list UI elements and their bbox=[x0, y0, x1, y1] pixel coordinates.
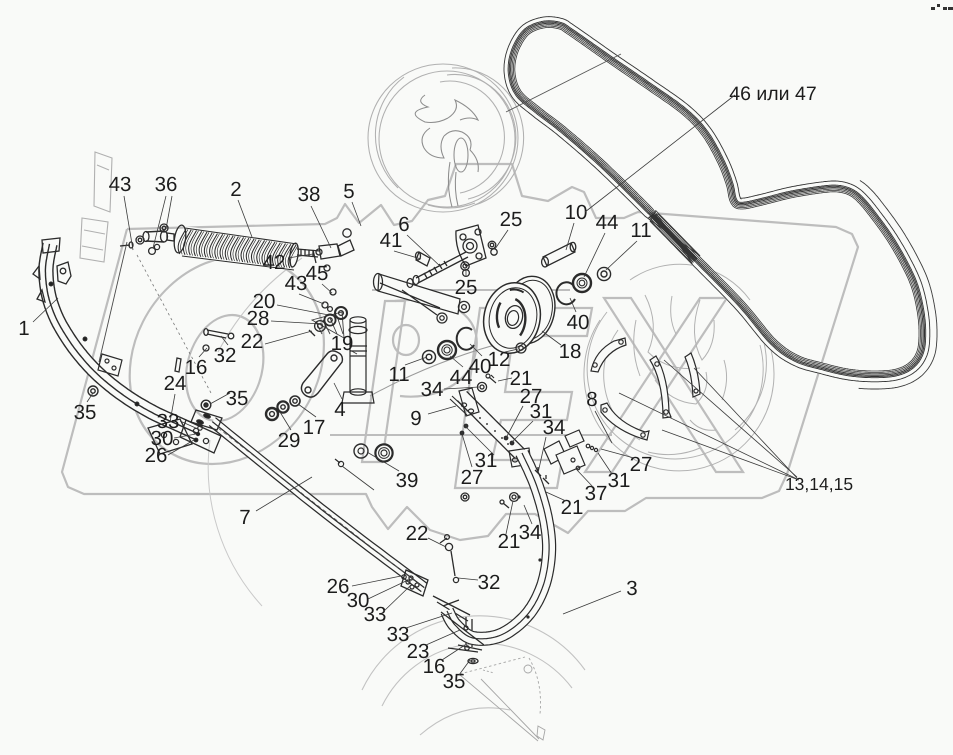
svg-text:35: 35 bbox=[443, 670, 466, 693]
svg-text:36: 36 bbox=[155, 173, 178, 196]
svg-text:18: 18 bbox=[559, 340, 582, 363]
svg-text:22: 22 bbox=[241, 330, 264, 353]
svg-text:32: 32 bbox=[478, 571, 501, 594]
svg-text:7: 7 bbox=[239, 506, 250, 529]
svg-text:42: 42 bbox=[263, 251, 286, 274]
svg-text:25: 25 bbox=[500, 208, 523, 231]
svg-text:26: 26 bbox=[145, 444, 168, 467]
svg-text:5: 5 bbox=[343, 180, 354, 203]
svg-text:3: 3 bbox=[626, 577, 637, 600]
svg-text:21: 21 bbox=[561, 496, 584, 519]
svg-text:17: 17 bbox=[303, 416, 326, 439]
svg-text:39: 39 bbox=[396, 469, 419, 492]
svg-text:29: 29 bbox=[278, 429, 301, 452]
svg-text:34: 34 bbox=[421, 378, 444, 401]
svg-text:4: 4 bbox=[334, 398, 345, 421]
svg-text:43: 43 bbox=[109, 173, 132, 196]
svg-text:37: 37 bbox=[585, 482, 608, 505]
svg-text:10: 10 bbox=[565, 201, 588, 224]
svg-text:2: 2 bbox=[230, 178, 241, 201]
svg-text:46 или 47: 46 или 47 bbox=[729, 83, 816, 105]
svg-text:34: 34 bbox=[543, 416, 566, 439]
svg-text:41: 41 bbox=[380, 229, 403, 252]
svg-text:43: 43 bbox=[285, 272, 308, 295]
svg-text:21: 21 bbox=[498, 530, 521, 553]
svg-text:28: 28 bbox=[247, 307, 270, 330]
svg-text:27: 27 bbox=[461, 466, 484, 489]
svg-text:33: 33 bbox=[364, 603, 387, 626]
svg-text:32: 32 bbox=[214, 344, 237, 367]
svg-text:19: 19 bbox=[331, 332, 354, 355]
svg-text:11: 11 bbox=[630, 219, 651, 242]
svg-text:35: 35 bbox=[74, 401, 97, 424]
svg-text:22: 22 bbox=[406, 522, 429, 545]
svg-text:38: 38 bbox=[298, 183, 321, 206]
svg-text:8: 8 bbox=[586, 388, 597, 411]
svg-text:45: 45 bbox=[306, 262, 329, 285]
svg-text:25: 25 bbox=[455, 276, 478, 299]
svg-text:27: 27 bbox=[630, 453, 653, 476]
svg-text:9: 9 bbox=[410, 407, 421, 430]
svg-text:35: 35 bbox=[226, 387, 249, 410]
svg-text:11: 11 bbox=[388, 363, 409, 386]
svg-text:16: 16 bbox=[185, 356, 208, 379]
svg-text:24: 24 bbox=[164, 372, 187, 395]
svg-text:40: 40 bbox=[567, 311, 590, 334]
svg-text:34: 34 bbox=[519, 521, 542, 544]
svg-text:1: 1 bbox=[18, 317, 29, 340]
svg-text:13,14,15: 13,14,15 bbox=[785, 474, 853, 494]
svg-text:44: 44 bbox=[596, 211, 619, 234]
